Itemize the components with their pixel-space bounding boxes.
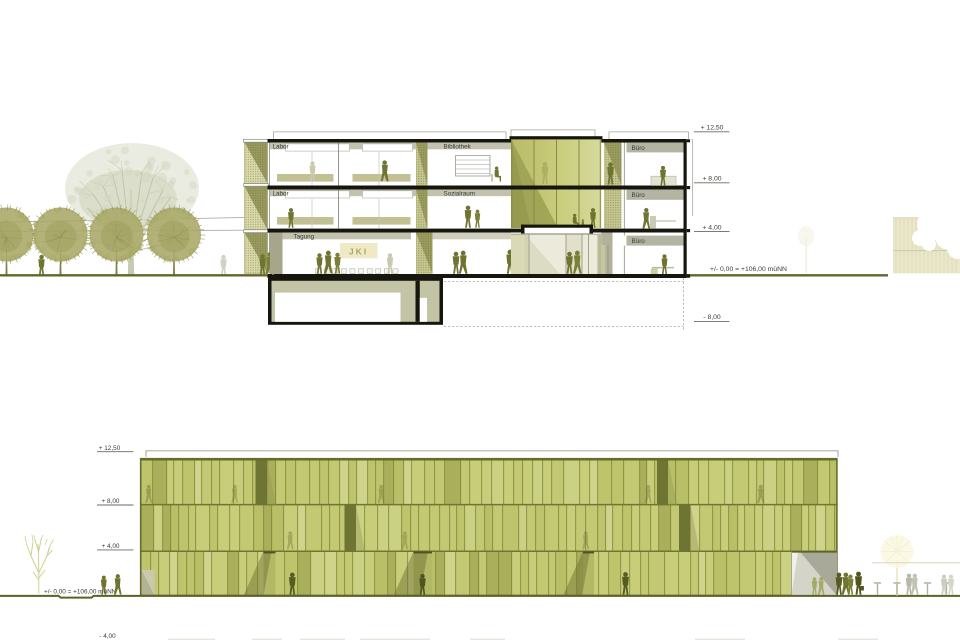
svg-text:Labor: Labor [273, 190, 289, 197]
svg-text:Bibliothek: Bibliothek [444, 143, 472, 150]
svg-text:+ 8,00: + 8,00 [702, 176, 721, 183]
svg-text:JKI: JKI [349, 248, 368, 257]
svg-text:Sozialraum: Sozialraum [444, 190, 476, 197]
svg-text:+ 4,00: + 4,00 [102, 543, 120, 550]
svg-text:+/- 0,00 = +106,00 müNN: +/- 0,00 = +106,00 müNN [710, 266, 787, 273]
svg-text:Tagung: Tagung [294, 233, 315, 240]
svg-text:+ 12,50: + 12,50 [99, 445, 121, 452]
svg-text:+ 12,50: + 12,50 [701, 125, 724, 132]
svg-text:- 4,00: - 4,00 [99, 633, 116, 640]
svg-text:- 8,00: - 8,00 [703, 314, 721, 321]
svg-text:+ 4,00: + 4,00 [702, 224, 721, 231]
svg-text:Büro: Büro [632, 145, 646, 152]
svg-text:+ 8,00: + 8,00 [102, 498, 120, 505]
svg-text:Büro: Büro [632, 238, 646, 245]
svg-text:Labor: Labor [273, 143, 289, 150]
svg-text:Büro: Büro [632, 192, 646, 199]
